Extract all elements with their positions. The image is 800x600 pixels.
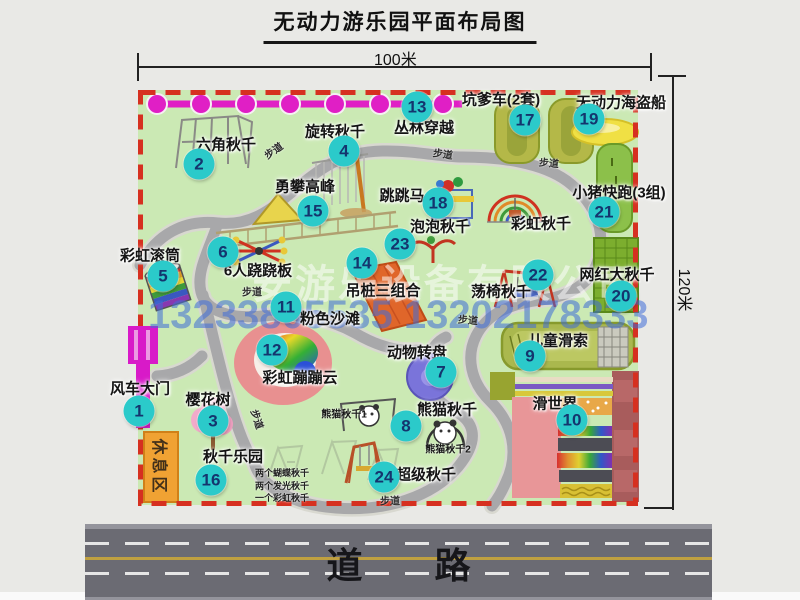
swing-park-note-line: 两个发光秋千 <box>255 480 309 493</box>
attraction-badge-21: 21 <box>589 197 620 228</box>
dim-tick-right-top <box>658 75 686 77</box>
attraction-badge-11: 11 <box>271 292 302 323</box>
dim-tick-top-left <box>137 53 139 81</box>
attraction-badge-3: 3 <box>198 406 229 437</box>
sub-label: 熊猫秋千2 <box>425 441 471 456</box>
attraction-label-14: 吊桩三组合 <box>345 280 420 301</box>
attraction-badge-5: 5 <box>148 261 179 292</box>
attraction-badge-8: 8 <box>391 411 422 442</box>
swing-park-notes: 两个蝴蝶秋千两个发光秋千一个彩虹秋千 <box>255 467 309 505</box>
dim-height-label: 120米 <box>674 269 698 312</box>
attraction-badge-19: 19 <box>574 104 605 135</box>
walkway-label: 步道 <box>432 144 454 162</box>
road-label: 道 路 <box>326 537 470 589</box>
attraction-badge-12: 12 <box>257 335 288 366</box>
attraction-label-23: 泡泡秋千 <box>410 216 470 237</box>
attraction-badge-20: 20 <box>606 281 637 312</box>
dim-width-label: 100米 <box>374 46 417 70</box>
attraction-badge-14: 14 <box>347 248 378 279</box>
dim-tick-top-right <box>650 53 652 81</box>
attraction-label-8: 熊猫秋千 <box>417 399 477 420</box>
attraction-badge-15: 15 <box>298 196 329 227</box>
attraction-badge-7: 7 <box>426 357 457 388</box>
walkway-label: 步道 <box>457 311 478 328</box>
rest-area-label: 休息区 <box>149 438 173 495</box>
attraction-badge-9: 9 <box>515 341 546 372</box>
swing-park-note-line: 一个彩虹秋千 <box>255 492 309 505</box>
attraction-label-22: 荡椅秋千 <box>471 281 531 302</box>
attraction-badge-17: 17 <box>510 105 541 136</box>
swing-park-note-line: 两个蝴蝶秋千 <box>255 467 309 480</box>
attraction-badge-2: 2 <box>184 149 215 180</box>
attraction-label-11: 粉色沙滩 <box>300 308 360 329</box>
attraction-badge-1: 1 <box>124 396 155 427</box>
attraction-label-15: 勇攀高峰 <box>275 176 335 197</box>
road: 道 路 <box>85 524 712 600</box>
attraction-label-18: 跳跳马 <box>379 185 424 206</box>
attraction-label-12: 彩虹蹦蹦云 <box>262 367 337 388</box>
attraction-badge-13: 13 <box>402 92 433 123</box>
attraction-label-21: 小猪快跑(3组) <box>572 182 665 203</box>
attraction-badge-18: 18 <box>423 188 454 219</box>
attraction-badge-24: 24 <box>369 462 400 493</box>
attraction-badge-6: 6 <box>208 237 239 268</box>
walkway-label: 步道 <box>242 284 262 299</box>
attraction-badge-4: 4 <box>329 136 360 167</box>
attraction-badge-23: 23 <box>385 229 416 260</box>
attraction-badge-22: 22 <box>523 260 554 291</box>
walkway-label: 步道 <box>380 493 400 508</box>
page-title: 无动力游乐园平面布局图 <box>264 6 537 44</box>
attraction-badge-10: 10 <box>557 405 588 436</box>
walkway-label: 步道 <box>538 154 559 171</box>
sub-label: 熊猫秋千1 <box>321 406 367 421</box>
park-layout-map: 无动力游乐园平面布局图 100米 120米 <box>0 0 800 600</box>
dim-tick-right-bottom <box>644 507 672 509</box>
attraction-badge-16: 16 <box>196 465 227 496</box>
attraction-label-24: 超级秋千 <box>396 464 456 485</box>
attraction-label-16: 秋千乐园 <box>203 446 263 467</box>
attraction-label-rainbow-swing: 彩虹秋千 <box>511 213 571 234</box>
